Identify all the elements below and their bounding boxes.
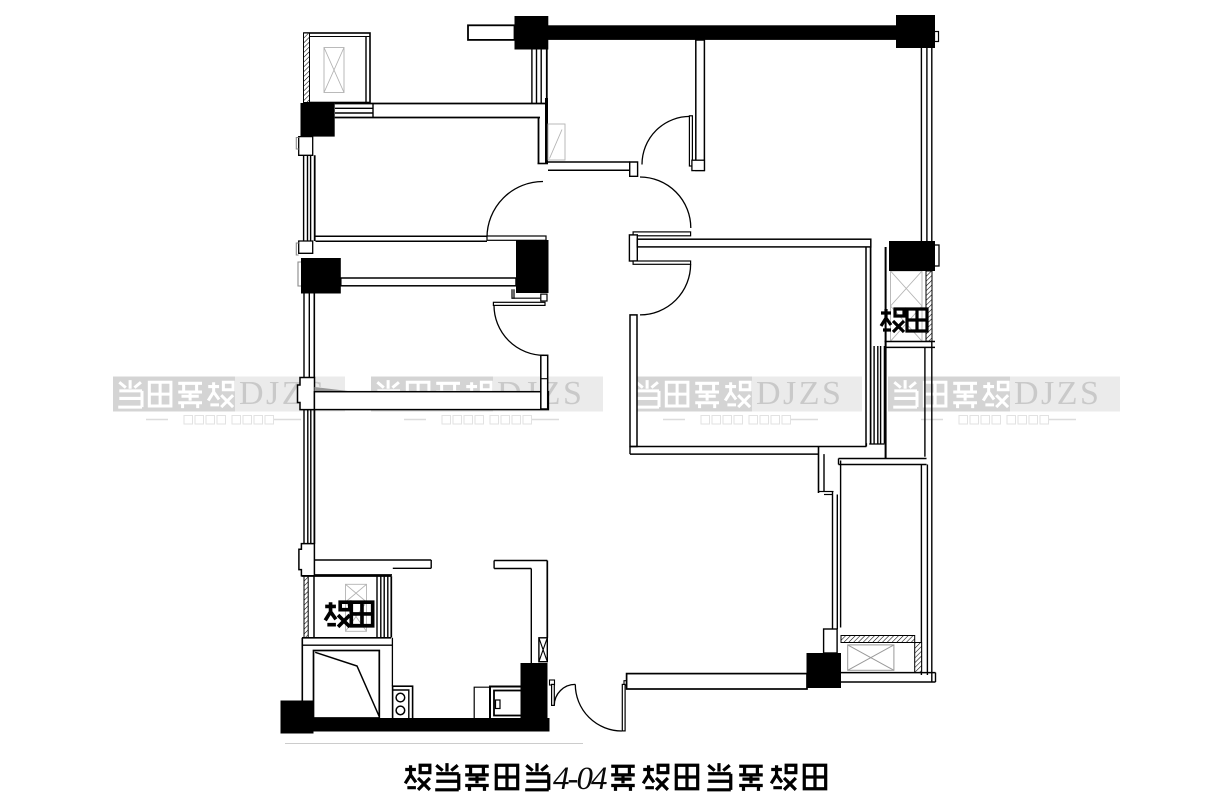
svg-text:DJZS: DJZS <box>1014 375 1101 412</box>
svg-text:DJZS: DJZS <box>756 375 843 412</box>
svg-text:4-04: 4-04 <box>553 761 607 797</box>
